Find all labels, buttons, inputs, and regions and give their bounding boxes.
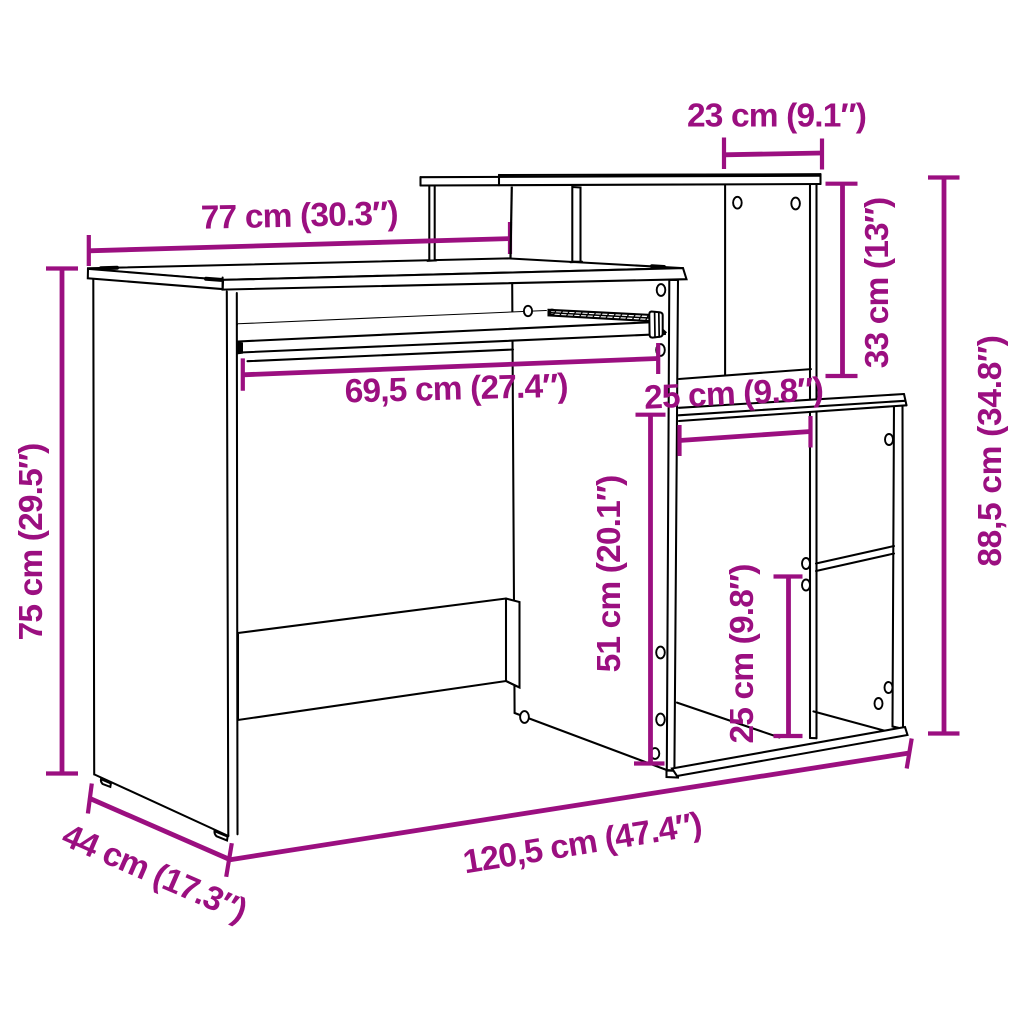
- svg-text:77 cm (30.3″): 77 cm (30.3″): [200, 195, 398, 236]
- svg-text:25 cm (9.8″): 25 cm (9.8″): [724, 564, 761, 743]
- svg-text:69,5 cm (27.4″): 69,5 cm (27.4″): [344, 368, 568, 411]
- svg-text:88,5 cm (34.8″): 88,5 cm (34.8″): [972, 335, 1009, 566]
- svg-text:51 cm (20.1″): 51 cm (20.1″): [591, 476, 628, 673]
- svg-text:75 cm (29.5″): 75 cm (29.5″): [13, 444, 50, 641]
- svg-text:23 cm (9.1″): 23 cm (9.1″): [687, 98, 866, 135]
- svg-text:33 cm (13″): 33 cm (13″): [859, 198, 896, 369]
